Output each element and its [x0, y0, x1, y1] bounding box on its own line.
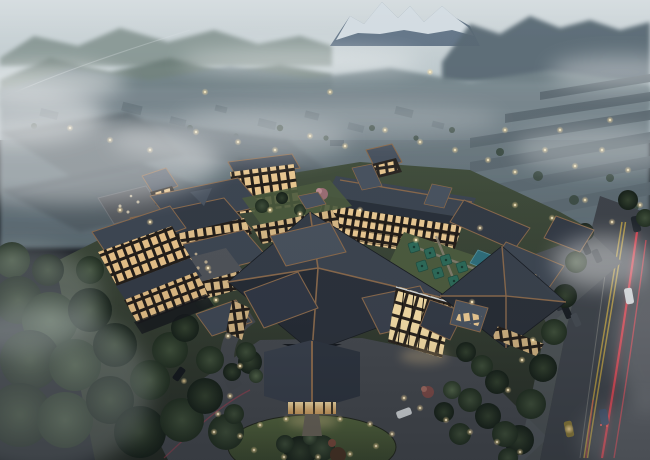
entry-glow [288, 402, 336, 414]
rendering-canvas [0, 0, 650, 460]
entry-walkway [302, 414, 322, 436]
architectural-rendering: Bird's-eye rendering at dusk: a resort h… [0, 0, 650, 460]
